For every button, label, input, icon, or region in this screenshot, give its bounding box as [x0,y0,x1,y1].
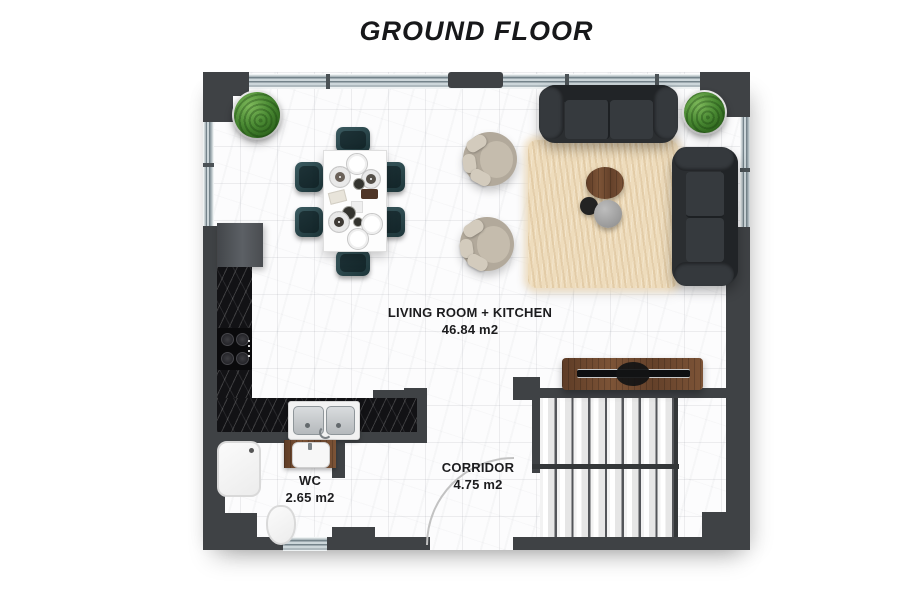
dining-table [323,150,387,252]
shower-drain [249,448,254,453]
wall-bottom [513,537,702,550]
floor-plan-screenshot: GROUND FLOOR [0,0,900,600]
armchair [460,217,514,271]
window-mullion [740,168,750,172]
room-name: LIVING ROOM + KITCHEN [350,304,590,321]
sofa-cushion [565,100,610,139]
washbasin-vanity [284,440,336,468]
sink-drain [305,423,310,428]
room-area: 2.65 m2 [260,489,360,506]
wall-bottom-step [332,527,375,538]
sofa-cushion [686,218,724,262]
wall-bottom [327,537,430,550]
tv-base [616,362,650,386]
napkin [328,189,347,205]
room-name: WC [260,472,360,489]
armchair [463,132,517,186]
plant [234,92,280,138]
sink-drain [336,423,341,428]
stairs-lower-flight [540,469,674,537]
plate [347,228,369,250]
room-label-wc: WC 2.65 m2 [260,472,360,506]
room-label-corridor: CORRIDOR 4.75 m2 [418,459,538,493]
coffee-table-oval [586,167,624,199]
room-label-living: LIVING ROOM + KITCHEN 46.84 m2 [350,304,590,338]
room-area: 46.84 m2 [350,321,590,338]
page-title: GROUND FLOOR [203,16,750,47]
stairs-mid-rail [532,464,679,469]
kitchen-sink [288,401,360,440]
plate [328,211,350,233]
plate [329,166,351,188]
coffee-table-round [594,200,622,228]
cooktop-knobs [248,340,250,358]
tv-console [562,358,703,390]
burner [221,352,234,365]
wall-pier-top [448,72,503,88]
dining-chair [336,250,370,276]
sink-faucet [319,426,332,439]
shower-tray [217,441,261,497]
burner [221,333,234,346]
window-mullion [203,163,214,167]
wall-corner-top-left [203,72,233,122]
stairs-upper-flight [540,398,674,464]
fridge [217,223,263,267]
plant [684,92,725,133]
window-right [740,117,750,227]
cooktop [217,328,252,370]
room-area: 4.75 m2 [418,476,538,493]
basin-faucet [308,443,312,450]
cutting-board [361,189,378,199]
floor-plan: LIVING ROOM + KITCHEN 46.84 m2 WC 2.65 m… [203,72,750,550]
sofa-cushion [686,172,724,218]
sofa-arm [674,262,734,286]
sofa-arm [674,147,734,171]
window-left [203,120,214,226]
dining-chair [295,162,323,192]
sofa-arm [653,87,678,139]
sofa-two-seat [540,85,677,143]
window-mullion [326,74,330,89]
sofa-cushion [610,100,653,139]
toilet [266,505,296,545]
stairs-right-rail [674,398,678,537]
wall-corner-bottom-right [702,512,750,550]
sofa-arm [539,87,564,139]
room-name: CORRIDOR [418,459,538,476]
dining-chair [295,207,323,237]
sofa-three-seat [672,148,738,285]
